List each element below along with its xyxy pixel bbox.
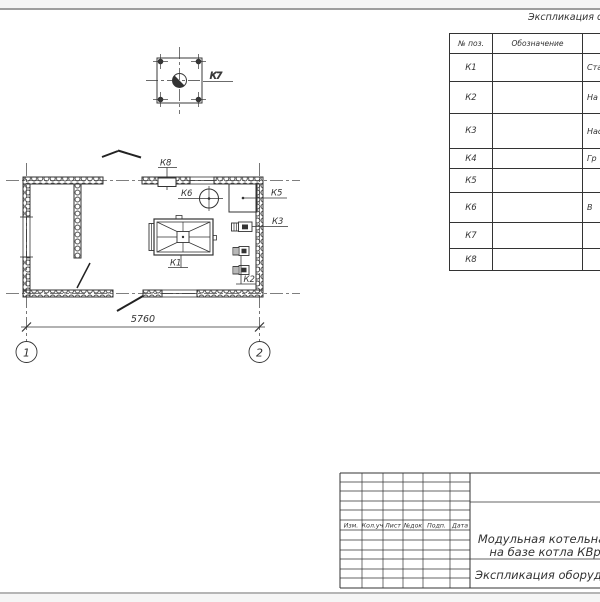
boiler-k1: К1 xyxy=(149,216,217,269)
label-k6: К6 xyxy=(181,189,193,199)
eq-row-designation xyxy=(493,193,583,223)
eq-row-designation xyxy=(493,82,583,114)
double-door-top xyxy=(102,151,141,158)
pumps-k2: К2 xyxy=(233,247,256,286)
axis-number-1: 1 xyxy=(23,347,30,360)
window-top xyxy=(190,177,214,184)
eq-row-designation xyxy=(493,169,583,193)
equipment-table-title: Экспликация оборудования xyxy=(528,12,600,23)
eq-row-name xyxy=(583,249,600,271)
eq-row-name xyxy=(583,223,600,249)
tb-header-data: Дата xyxy=(451,523,468,530)
eq-row-pos: К1 xyxy=(450,54,493,82)
equipment-table: Экспликация оборудования № поз. Обозначе… xyxy=(449,33,600,271)
eq-row-pos: К6 xyxy=(450,193,493,223)
chimney-detail-k7: К7 xyxy=(146,47,233,114)
eq-row-designation xyxy=(493,114,583,149)
building-walls xyxy=(20,177,263,297)
tb-header-list: Лист xyxy=(384,523,401,530)
label-k3: К3 xyxy=(272,217,283,227)
tb-header-ndok: №док xyxy=(403,523,422,530)
sheet-name: Экспликация оборудования xyxy=(474,568,600,582)
eq-header-pos: № поз. xyxy=(450,34,493,54)
label-k1: К1 xyxy=(170,259,181,269)
eq-row-pos: К4 xyxy=(450,149,493,169)
eq-row-name xyxy=(583,169,600,193)
wall-left-1 xyxy=(23,184,30,217)
eq-row-designation xyxy=(493,249,583,271)
window-bottom xyxy=(162,290,197,297)
eq-row-name: Насос xyxy=(583,114,600,149)
label-k7: К7 xyxy=(210,72,222,82)
tb-header-koluch: Кол.уч xyxy=(362,523,384,530)
tb-header-izm: Изм. xyxy=(344,523,359,530)
wall-bottom-2 xyxy=(143,290,162,297)
eq-header-name xyxy=(583,34,600,54)
dimension-value: 5760 xyxy=(131,314,155,325)
axis-bubbles: 1 2 xyxy=(16,342,270,363)
title-block-headers: Изм. Кол.уч Лист №док Подп. Дата xyxy=(344,523,468,530)
eq-row-designation xyxy=(493,54,583,82)
wall-top-1 xyxy=(23,177,103,184)
label-k2: К2 xyxy=(244,275,255,285)
doc-title-line2: на базе котла КВр xyxy=(489,545,600,559)
eq-header-designation: Обозначение xyxy=(493,34,583,54)
doors xyxy=(77,151,143,312)
item-k8: К8 xyxy=(158,159,177,191)
equipment-table-grid: № поз. Обозначение К1 Стал К2 На К3 Насо… xyxy=(449,33,600,271)
axis-number-2: 2 xyxy=(256,347,263,360)
wall-bottom-1 xyxy=(23,290,113,297)
wall-partition xyxy=(74,184,81,258)
fan-k6: К6 xyxy=(178,186,223,211)
eq-row-pos: К7 xyxy=(450,223,493,249)
pump-motor-icon xyxy=(232,223,239,231)
pump-icon xyxy=(233,247,249,256)
title-block-titles: Модульная котельная на базе котла КВр Эк… xyxy=(474,532,600,582)
title-block: Изм. Кол.уч Лист №док Подп. Дата Модульн… xyxy=(340,473,600,588)
window-left xyxy=(20,217,33,257)
eq-row-pos: К2 xyxy=(450,82,493,114)
wall-top-3 xyxy=(214,177,263,184)
eq-row-pos: К8 xyxy=(450,249,493,271)
eq-row-name: На xyxy=(583,82,600,114)
door-bottom xyxy=(117,296,143,311)
eq-row-name: В xyxy=(583,193,600,223)
eq-row-pos: К5 xyxy=(450,169,493,193)
eq-row-designation xyxy=(493,149,583,169)
eq-row-pos: К3 xyxy=(450,114,493,149)
eq-row-name: Стал xyxy=(583,54,600,82)
label-k5: К5 xyxy=(271,189,282,199)
sheet-bottom-edge xyxy=(0,592,600,602)
wall-bottom-3 xyxy=(197,290,263,297)
door-partition xyxy=(77,263,90,288)
eq-row-name: Гр xyxy=(583,149,600,169)
eq-row-designation xyxy=(493,223,583,249)
tb-header-podp: Подп. xyxy=(427,523,446,530)
doc-title-line1: Модульная котельная xyxy=(478,532,600,546)
dimension: 5760 xyxy=(21,314,265,332)
label-k8: К8 xyxy=(160,159,172,169)
